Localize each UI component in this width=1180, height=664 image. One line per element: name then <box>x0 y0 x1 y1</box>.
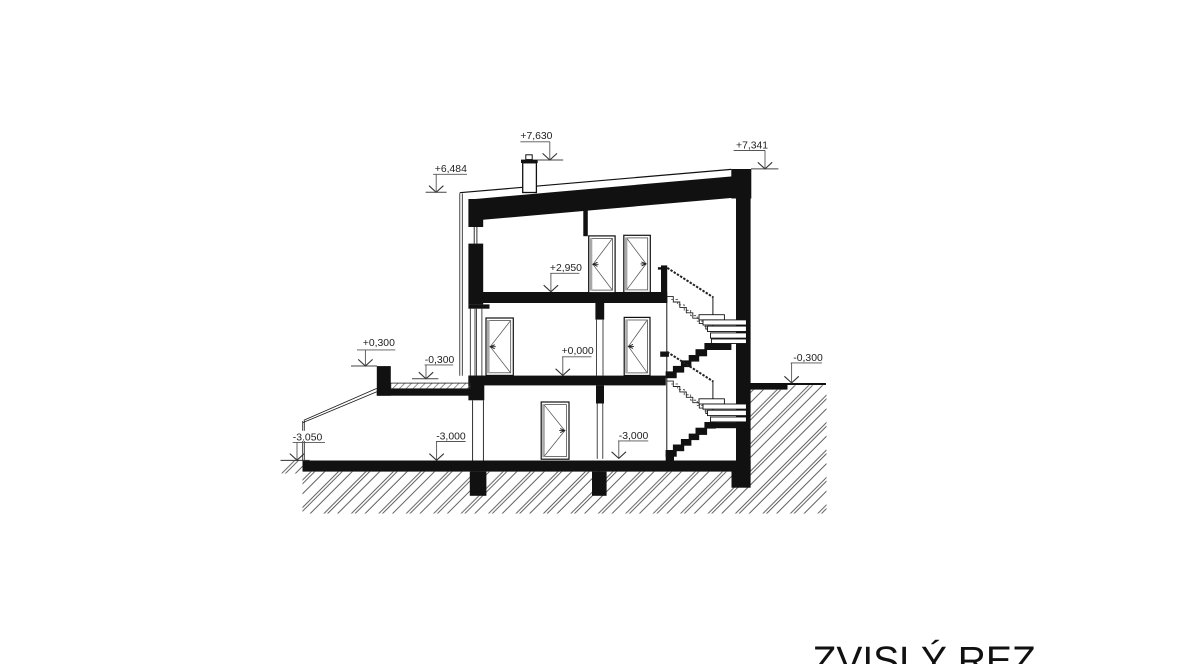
svg-text:ZVISLÝ REZ: ZVISLÝ REZ <box>813 640 1036 664</box>
svg-text:+0,000: +0,000 <box>562 346 594 357</box>
svg-text:+7,630: +7,630 <box>520 131 552 142</box>
svg-text:-3,000: -3,000 <box>436 431 466 442</box>
svg-text:+2,950: +2,950 <box>550 263 582 274</box>
svg-text:+0,300: +0,300 <box>363 338 395 349</box>
svg-text:-3.050: -3.050 <box>293 433 323 444</box>
svg-text:+7,341: +7,341 <box>736 140 768 151</box>
svg-text:-0,300: -0,300 <box>793 353 823 364</box>
svg-text:+6,484: +6,484 <box>435 164 467 175</box>
svg-text:-3,000: -3,000 <box>619 431 649 442</box>
